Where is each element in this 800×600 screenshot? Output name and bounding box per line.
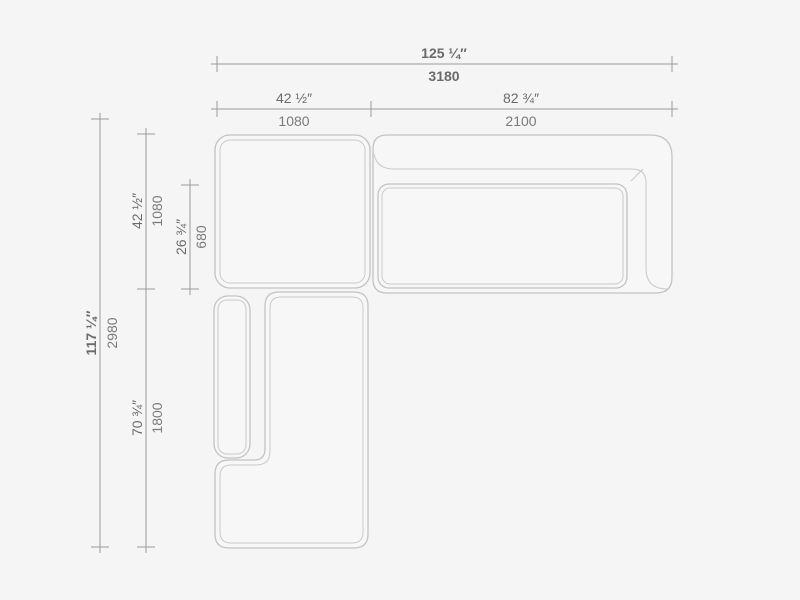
label-seat-depth-mm: 680: [193, 225, 209, 249]
label-right-width-inches: 82 ¾″: [503, 90, 539, 106]
label-top-depth-mm: 1080: [149, 195, 165, 226]
label-seat-depth-inches: 26 ¾″: [173, 219, 189, 255]
label-total-width-mm: 3180: [428, 68, 459, 84]
label-total-depth-inches: 117 ¼″: [83, 310, 99, 355]
label-top-depth-inches: 42 ½″: [129, 193, 145, 229]
corner-module-outline: [215, 135, 370, 288]
bottom-module-armrest: [214, 296, 250, 458]
right-module-seat-cushion: [378, 184, 627, 288]
dimension-lines: [91, 56, 678, 553]
label-total-width-inches: 125 ¼″: [421, 45, 467, 61]
label-right-width-mm: 2100: [505, 113, 536, 129]
label-left-width-mm: 1080: [278, 113, 309, 129]
sofa-plan: [214, 135, 672, 548]
label-bottom-depth-inches: 70 ¾″: [129, 400, 145, 436]
label-left-width-inches: 42 ½″: [276, 90, 312, 106]
sofa-plan-svg: 125 ¼″ 3180 42 ½″ 1080 82 ¾″ 2100 117 ¼″…: [0, 0, 800, 600]
dimension-drawing-canvas: 125 ¼″ 3180 42 ½″ 1080 82 ¾″ 2100 117 ¼″…: [0, 0, 800, 600]
label-total-depth-mm: 2980: [104, 317, 120, 348]
label-bottom-depth-mm: 1800: [149, 402, 165, 433]
